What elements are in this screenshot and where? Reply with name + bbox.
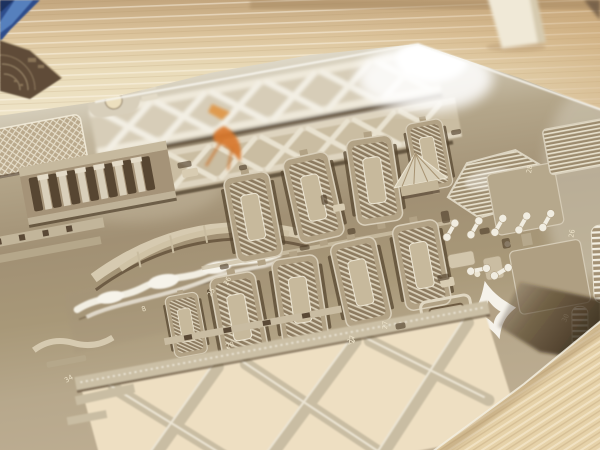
photo-metal-model-sheet: 20 24 34 8 25 26 26 27 27 28 30 bbox=[0, 0, 600, 450]
part-number-27: 27 bbox=[348, 335, 357, 344]
scene-canvas: 20 24 34 8 25 26 26 27 27 28 30 bbox=[0, 0, 600, 450]
desk-far-edge bbox=[250, 0, 600, 9]
part-number-27b: 27 bbox=[381, 321, 390, 330]
part-number-28: 28 bbox=[525, 164, 534, 174]
part-number-26b: 26 bbox=[567, 229, 576, 239]
